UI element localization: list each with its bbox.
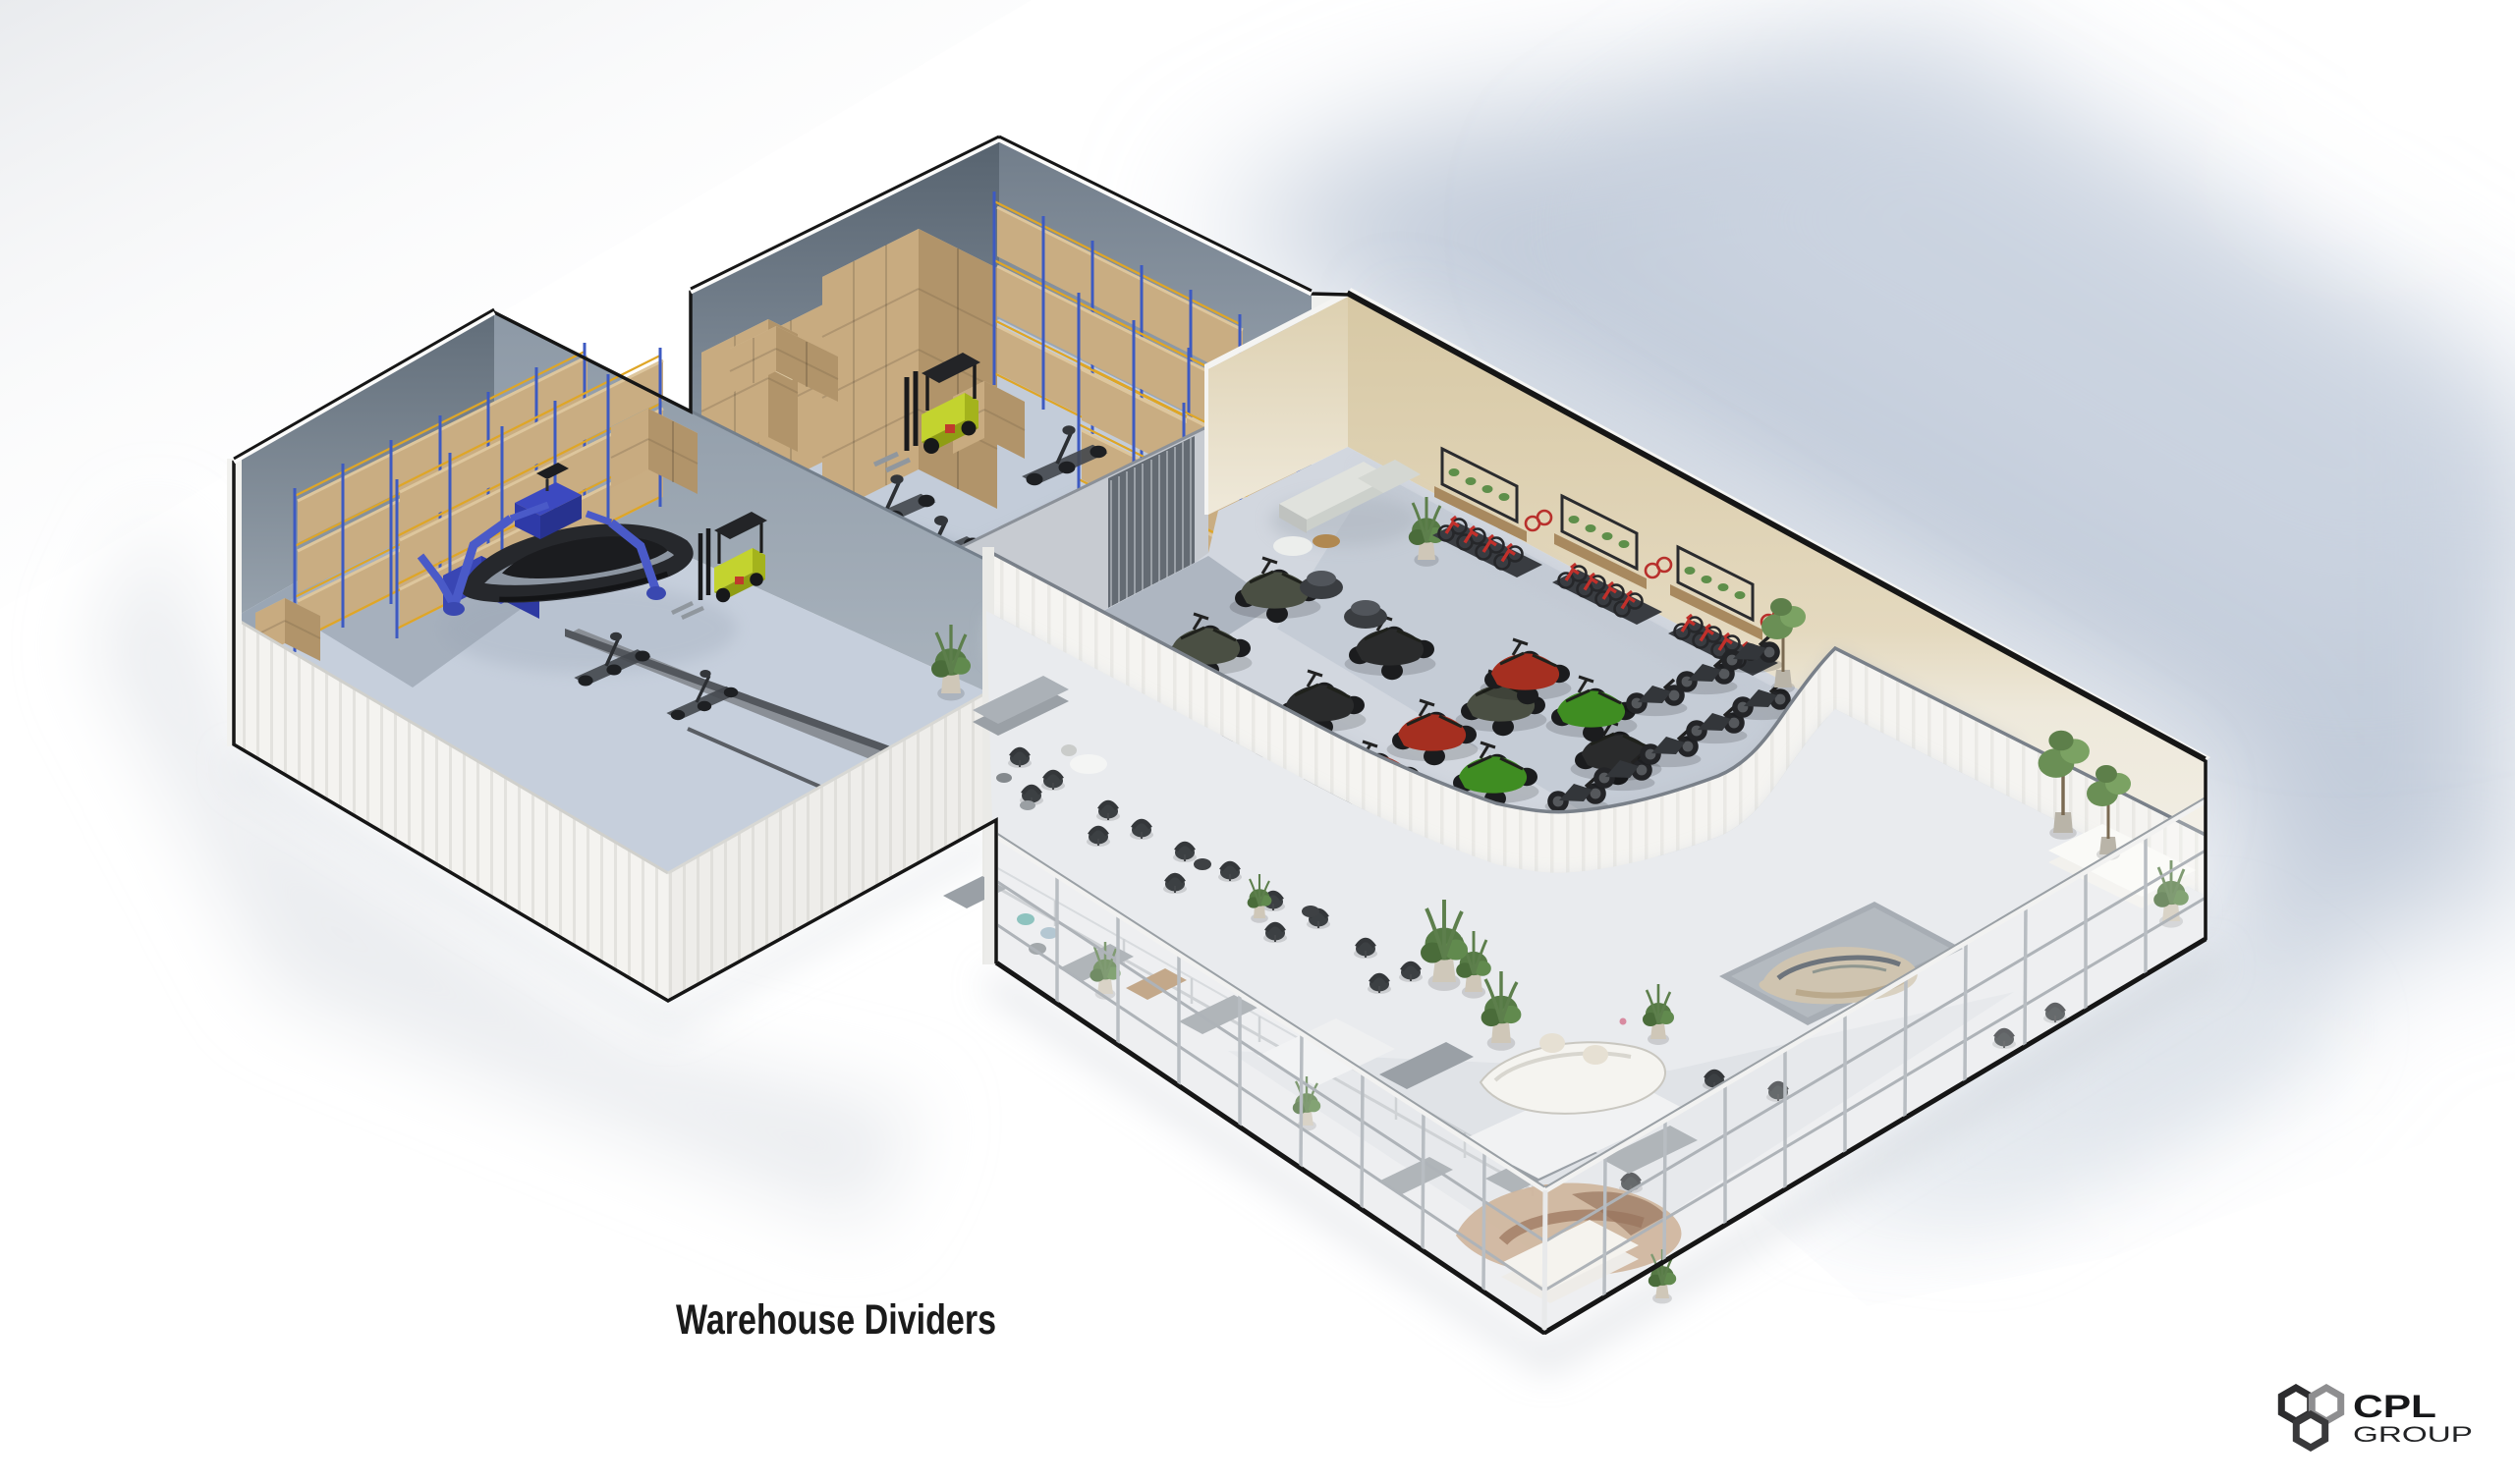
svg-text:Warehouse Dividers: Warehouse Dividers: [676, 1297, 996, 1344]
svg-text:GROUP: GROUP: [2353, 1422, 2473, 1447]
svg-text:CPL: CPL: [2353, 1389, 2436, 1424]
